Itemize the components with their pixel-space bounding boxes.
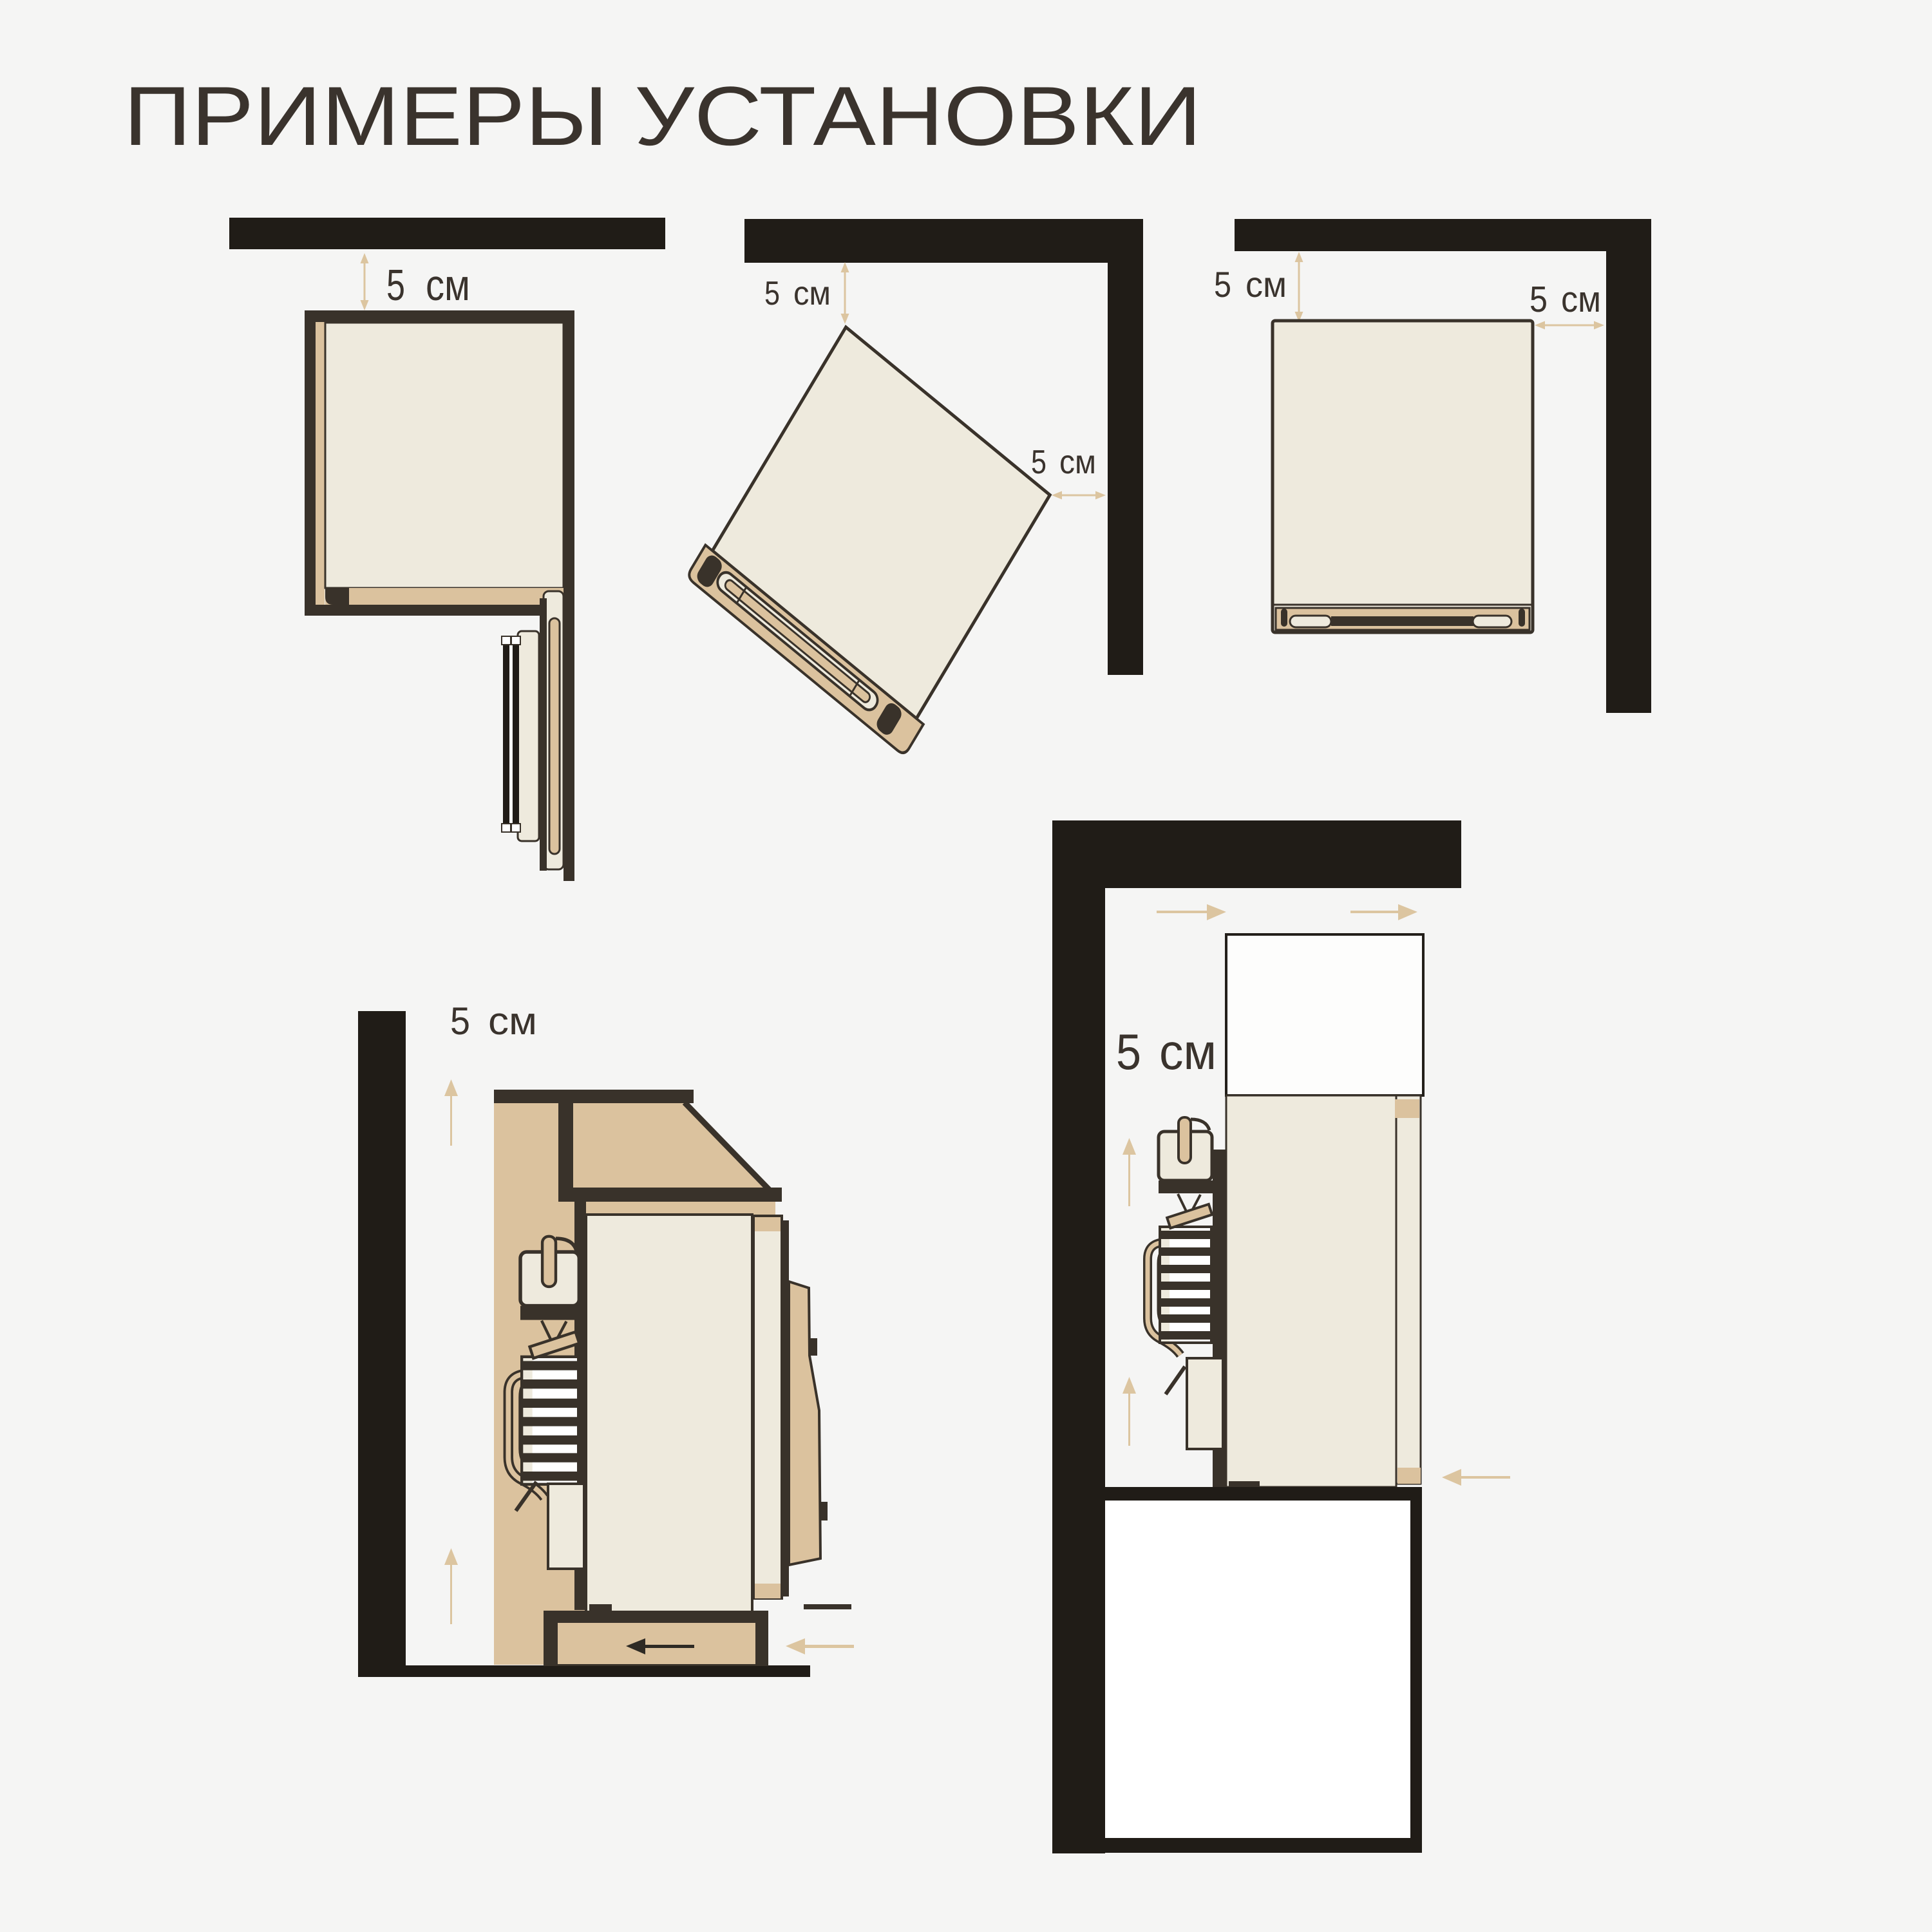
svg-text:5см: 5см xyxy=(450,999,537,1043)
svg-text:5см: 5см xyxy=(1214,264,1287,305)
svg-text:5см: 5см xyxy=(1031,444,1096,481)
svg-text:5см: 5см xyxy=(1529,279,1601,320)
svg-text:5см: 5см xyxy=(386,261,470,310)
svg-text:5см: 5см xyxy=(764,275,831,312)
svg-text:5см: 5см xyxy=(1116,1023,1217,1080)
svg-text:ПРИМЕРЫ УСТАНОВКИ: ПРИМЕРЫ УСТАНОВКИ xyxy=(124,69,1202,163)
